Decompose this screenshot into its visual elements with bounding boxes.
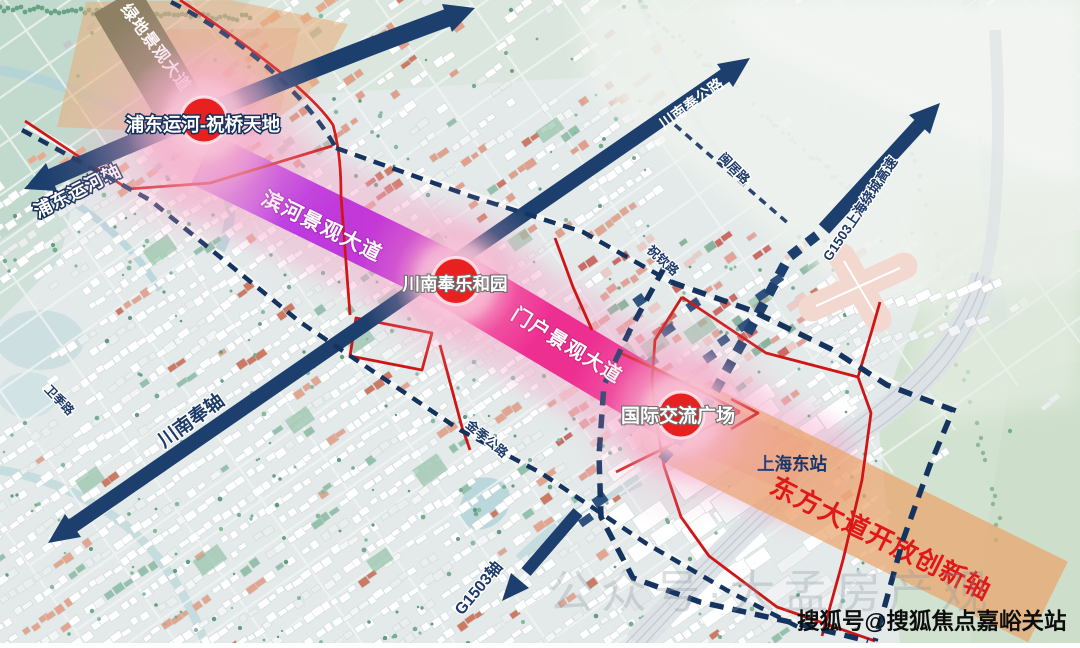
svg-text:国际交流广场: 国际交流广场 xyxy=(621,404,735,427)
svg-text:浦东运河-祝桥天地: 浦东运河-祝桥天地 xyxy=(126,114,281,135)
svg-text:搜狐号@搜狐焦点嘉峪关站: 搜狐号@搜狐焦点嘉峪关站 xyxy=(797,608,1067,634)
svg-text:川南奉乐和园: 川南奉乐和园 xyxy=(402,274,508,294)
